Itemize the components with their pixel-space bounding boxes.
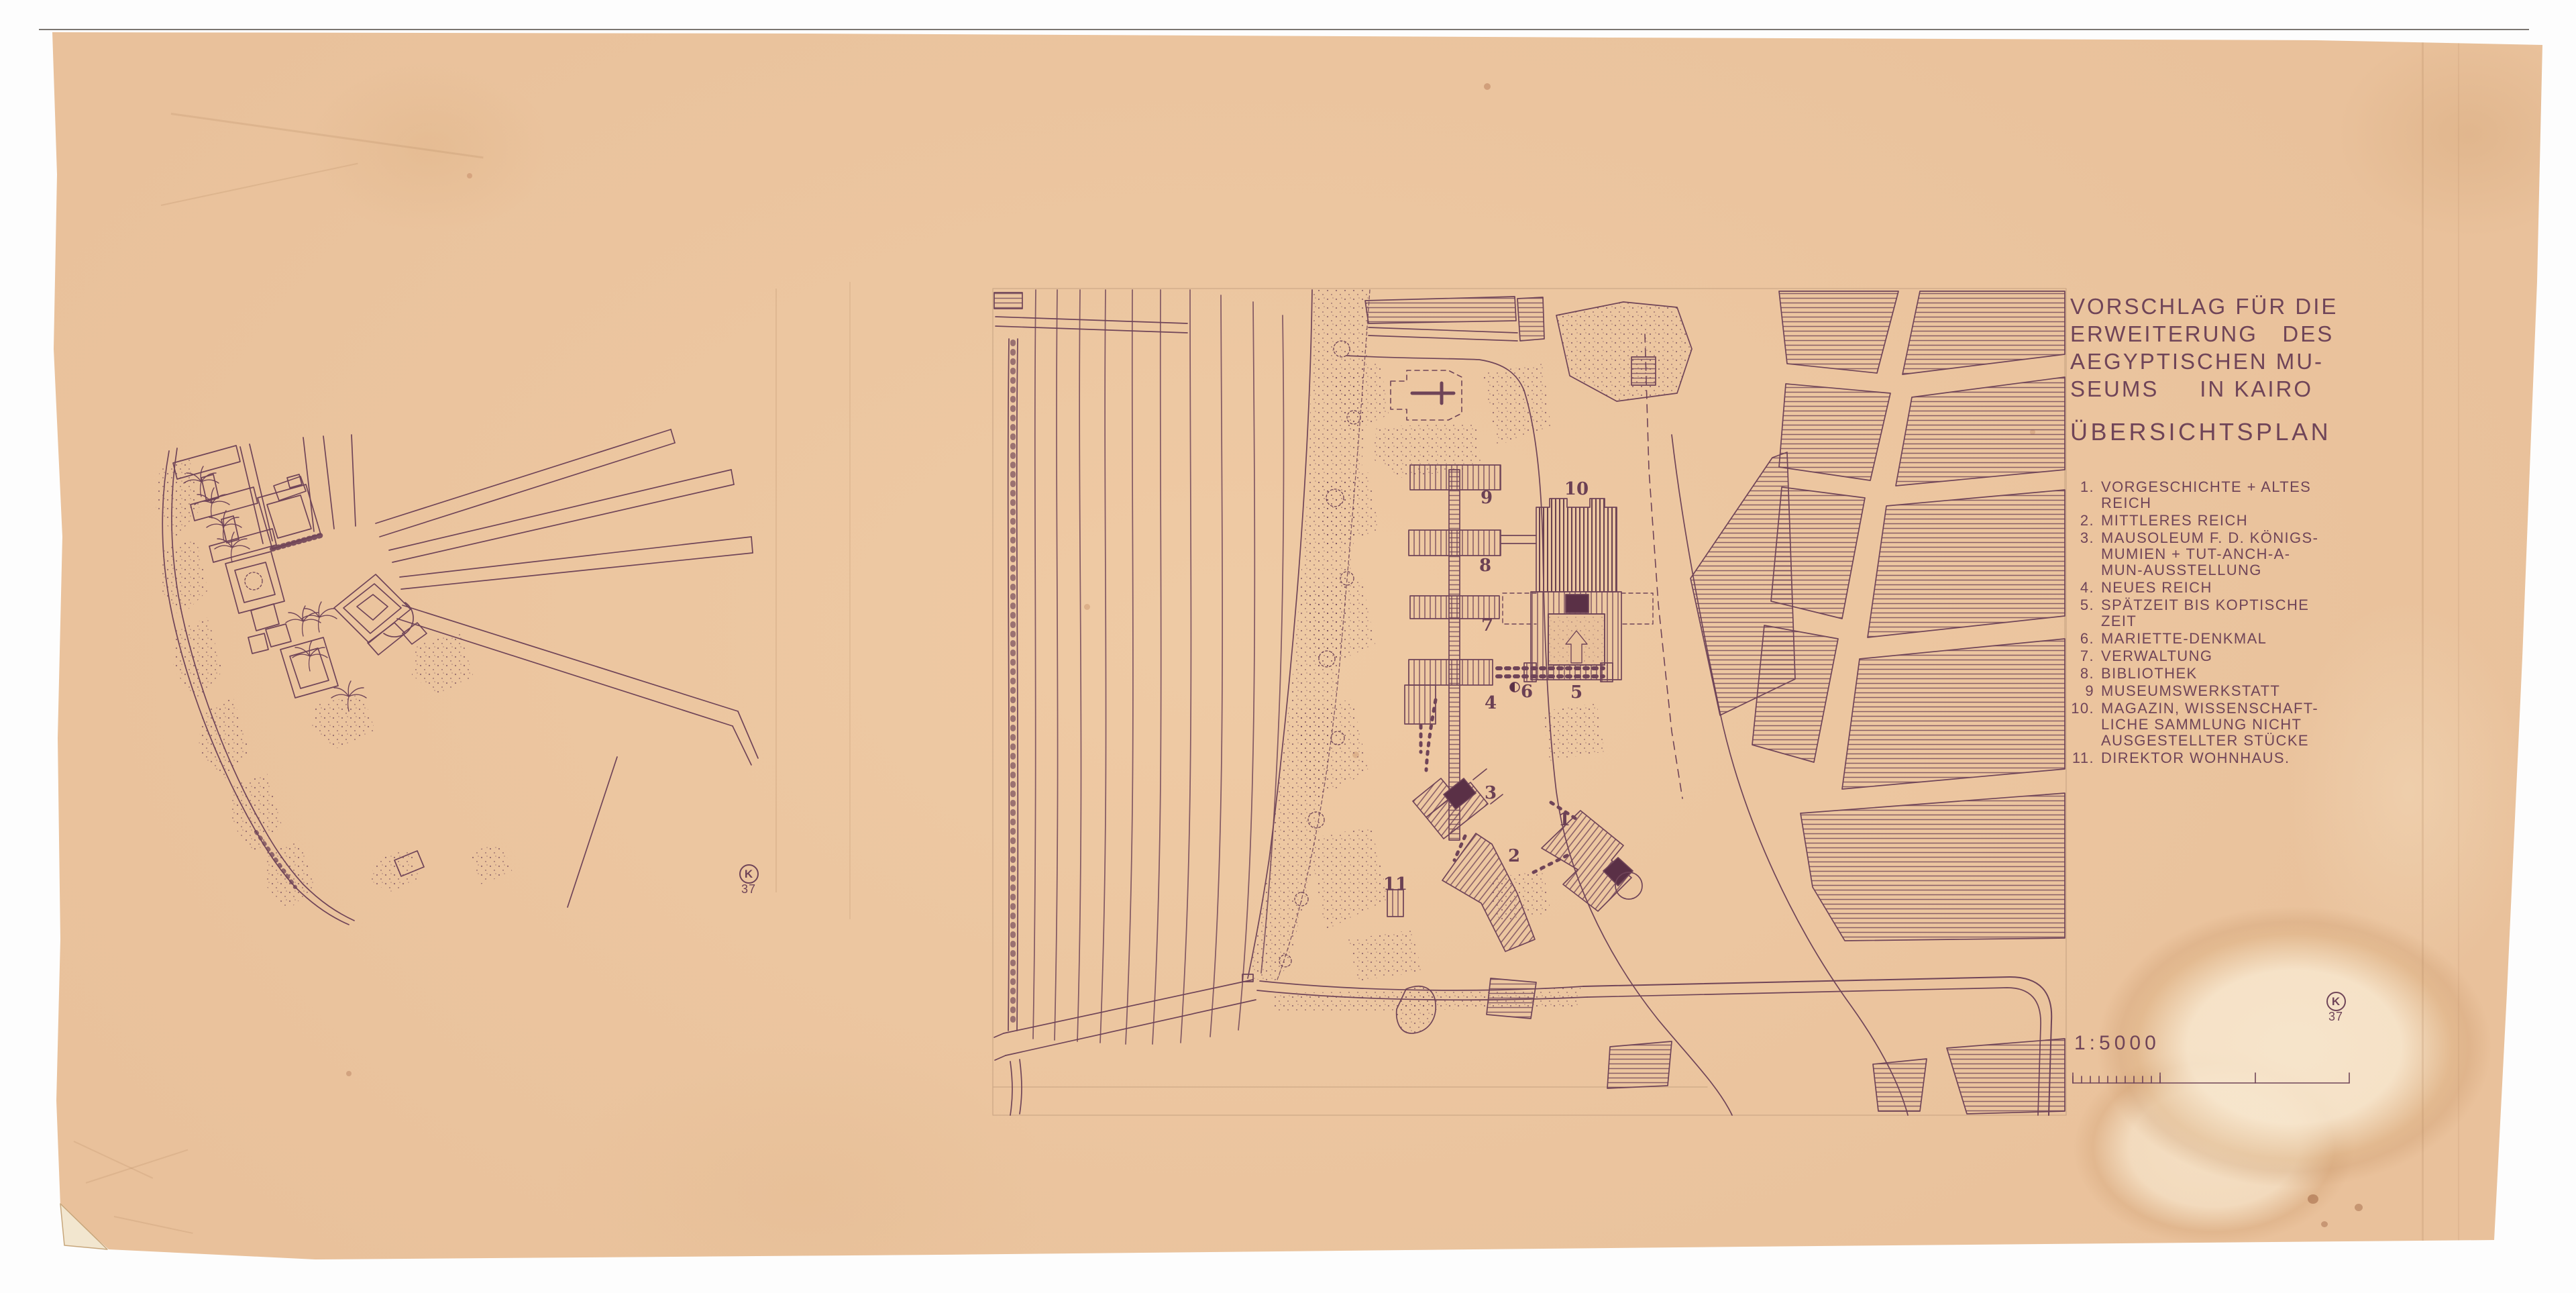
- legend-item-number: 7.: [2066, 648, 2101, 664]
- legend-item-number: 3.: [2066, 530, 2101, 578]
- legend-item-text: MAUSOLEUM F. D. KÖNIGS- MUMIEN + TUT-ANC…: [2101, 530, 2318, 578]
- legend-item: 10. MAGAZIN, WISSENSCHAFT- LICHE SAMMLUN…: [2066, 701, 2428, 749]
- subtitle-uebersichtsplan: ÜBERSICHTSPLAN: [2070, 419, 2338, 446]
- left-axonometric-drawing: [156, 429, 758, 925]
- legend-item-number: 4.: [2066, 580, 2101, 596]
- building-number: 8: [1479, 556, 1491, 576]
- building-number: 7: [1481, 615, 1493, 635]
- tut-anch-amun-hall: [1566, 594, 1589, 613]
- legend-item-text: MARIETTE-DENKMAL: [2101, 631, 2267, 647]
- title-line: ERWEITERUNG DES: [2070, 320, 2338, 348]
- legend-item: 8. BIBLIOTHEK: [2066, 666, 2428, 682]
- church-outline: [1391, 370, 1462, 420]
- legend-item: 6. MARIETTE-DENKMAL: [2066, 631, 2428, 647]
- legend-item-text: SPÄTZEIT BIS KOPTISCHE ZEIT: [2101, 597, 2309, 629]
- legend-item-number: 6.: [2066, 631, 2101, 647]
- legend-item-text: BIBLIOTHEK: [2101, 666, 2198, 682]
- building-10-magazin: [1536, 499, 1617, 592]
- building-number: 2: [1508, 846, 1520, 866]
- legend-item-text: MITTLERES REICH: [2101, 513, 2248, 529]
- grounds-boundary-dashed: [1645, 334, 1682, 798]
- monogram-initial: K: [739, 864, 759, 884]
- legend-item-number: 2.: [2066, 513, 2101, 529]
- building-number: 9: [1481, 488, 1493, 508]
- legend-item: 7. VERWALTUNG: [2066, 648, 2428, 664]
- building-number: 5: [1570, 682, 1582, 703]
- folded-corner: [60, 1204, 107, 1249]
- nile-river: [994, 290, 1370, 1044]
- legend-item-text: VERWALTUNG: [2101, 648, 2212, 664]
- legend-item-number: 11.: [2066, 750, 2101, 766]
- courtyard-building: [225, 552, 284, 613]
- legend-item-number: 1.: [2066, 479, 2101, 511]
- legend-item: 5. SPÄTZEIT BIS KOPTISCHE ZEIT: [2066, 597, 2428, 629]
- building-number: 6: [1521, 682, 1533, 702]
- park-blob: [1556, 302, 1692, 401]
- legend-item-number: 8.: [2066, 666, 2101, 682]
- building-number: 11: [1383, 874, 1407, 894]
- legend-item-text: DIREKTOR WOHNHAUS.: [2101, 750, 2290, 766]
- legend-item: 1. VORGESCHICHTE + ALTES REICH: [2066, 479, 2428, 511]
- legend-item-text: MUSEUMSWERKSTATT: [2101, 683, 2280, 699]
- legend-item-number: 10.: [2066, 701, 2101, 749]
- title-line: AEGYPTISCHEN MU-: [2070, 348, 2338, 375]
- title-block: VORSCHLAG FÜR DIE ERWEITERUNG DES AEGYPT…: [2070, 293, 2338, 446]
- legend-item: 11. DIREKTOR WOHNHAUS.: [2066, 750, 2428, 766]
- building-number: 3: [1485, 783, 1497, 803]
- legend-item-text: NEUES REICH: [2101, 580, 2212, 596]
- monogram-year: 37: [2320, 1010, 2352, 1024]
- legend-item: 2. MITTLERES REICH: [2066, 513, 2428, 529]
- legend-item-text: VORGESCHICHTE + ALTES REICH: [2101, 479, 2311, 511]
- legend-item-number: 5.: [2066, 597, 2101, 629]
- building-8-bibliothek: [1409, 530, 1501, 556]
- monogram-initial: K: [2326, 992, 2346, 1011]
- legend-item: 4. NEUES REICH: [2066, 580, 2428, 596]
- scale-ratio-label: 1:5000: [2074, 1032, 2160, 1055]
- legend-item-text: MAGAZIN, WISSENSCHAFT- LICHE SAMMLUNG NI…: [2101, 701, 2318, 749]
- legend-item: 3. MAUSOLEUM F. D. KÖNIGS- MUMIEN + TUT-…: [2066, 530, 2428, 578]
- monogram-year: 37: [733, 882, 765, 896]
- building-4-neues-reich: [1409, 660, 1493, 685]
- legend-item: 9 MUSEUMSWERKSTATT: [2066, 683, 2428, 699]
- title-line: SEUMS IN KAIRO: [2070, 375, 2338, 403]
- title-line: VORSCHLAG FÜR DIE: [2070, 293, 2338, 320]
- building-number: 4: [1485, 693, 1497, 713]
- legend-item-number: 9: [2066, 683, 2101, 699]
- legend: 1. VORGESCHICHTE + ALTES REICH 2. MITTLE…: [2066, 479, 2428, 768]
- building-number: 10: [1564, 479, 1589, 499]
- architect-monogram: K 37: [733, 864, 765, 896]
- building-9-werkstatt: [1410, 465, 1501, 490]
- scale-bar: [2073, 1073, 2349, 1083]
- architect-monogram: K 37: [2320, 992, 2352, 1024]
- building-number: 1: [1558, 810, 1570, 830]
